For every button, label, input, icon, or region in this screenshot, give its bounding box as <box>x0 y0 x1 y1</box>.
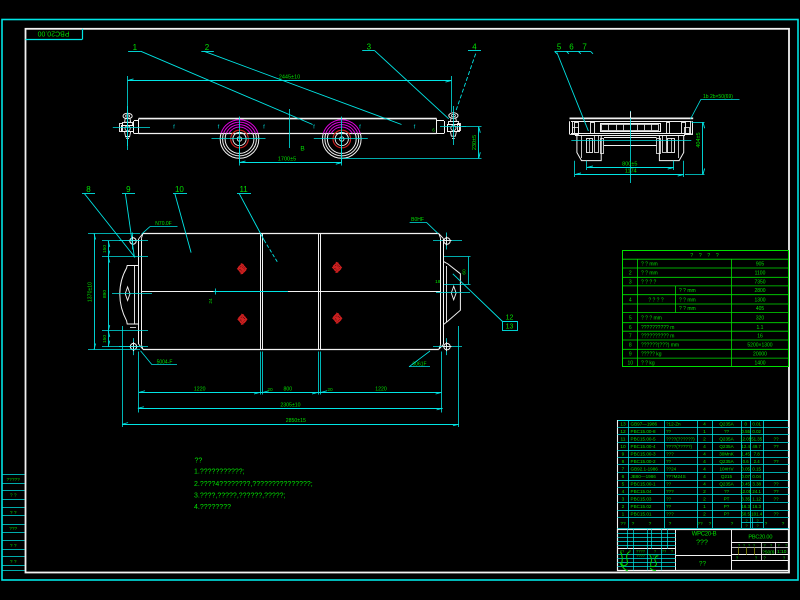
svg-text:Q235A: Q235A <box>719 422 734 427</box>
svg-text:1400: 1400 <box>754 360 765 366</box>
svg-text:11: 11 <box>239 185 248 194</box>
svg-text:??: ?? <box>773 459 779 464</box>
svg-text:10: 10 <box>620 444 626 450</box>
svg-text:9: 9 <box>126 185 131 194</box>
svg-text:5200×1300: 5200×1300 <box>747 343 772 349</box>
svg-text:6: 6 <box>622 474 625 480</box>
svg-text:? ? mm: ? ? mm <box>679 306 696 312</box>
svg-text:? ? mm: ? ? mm <box>641 262 658 268</box>
svg-text:??: ?? <box>666 429 672 434</box>
svg-text:??: ?? <box>724 429 730 434</box>
svg-text:??: ?? <box>773 437 779 442</box>
svg-text:GB97—1986: GB97—1986 <box>631 422 658 427</box>
svg-text:??: ?? <box>773 489 779 494</box>
svg-text:4.????????: 4.???????? <box>194 504 231 511</box>
svg-text:? ?: ? ? <box>10 559 17 565</box>
svg-text:24: 24 <box>208 298 214 304</box>
svg-text:???: ??? <box>666 489 674 494</box>
svg-text:?: ? <box>632 521 635 527</box>
svg-text:150: 150 <box>102 335 108 343</box>
svg-text:1370±10: 1370±10 <box>87 282 93 302</box>
svg-text:0.55: 0.55 <box>741 429 750 434</box>
svg-text:?: ? <box>748 544 750 548</box>
svg-text:PBC15.04: PBC15.04 <box>631 489 652 494</box>
svg-text:???: ??? <box>652 554 658 558</box>
svg-text:150: 150 <box>102 245 108 253</box>
svg-text:PBC20.00: PBC20.00 <box>748 534 772 540</box>
svg-text:PBC15.00-4: PBC15.00-4 <box>631 444 656 449</box>
svg-text:404±5: 404±5 <box>696 132 702 147</box>
svg-text:0.05: 0.05 <box>741 467 750 472</box>
svg-text:??: ?? <box>666 497 672 502</box>
svg-text:24.1: 24.1 <box>752 489 761 494</box>
svg-text:2: 2 <box>703 437 706 443</box>
svg-text:5: 5 <box>629 316 632 322</box>
svg-text:?????: ????? <box>7 477 21 483</box>
svg-text:4: 4 <box>622 489 625 495</box>
svg-text:20000: 20000 <box>753 352 767 358</box>
svg-text:4: 4 <box>703 474 706 480</box>
svg-text:1.???????????;: 1.???????????; <box>194 469 245 476</box>
svg-text:890: 890 <box>102 290 108 298</box>
svg-text:??????(???) mm: ??????(???) mm <box>641 343 679 349</box>
svg-text:7: 7 <box>622 467 625 473</box>
svg-text:7.8: 7.8 <box>754 452 761 457</box>
svg-text:3.????,?????,??????,?????;: 3.????,?????,??????,?????; <box>194 493 286 500</box>
svg-text:12: 12 <box>620 429 626 435</box>
svg-text:??: ?? <box>699 561 707 568</box>
svg-text:1220: 1220 <box>375 386 387 392</box>
svg-text:??: ?? <box>773 482 779 487</box>
svg-text:50.5: 50.5 <box>741 512 750 517</box>
svg-text:4: 4 <box>629 297 632 303</box>
svg-text:8: 8 <box>622 459 625 465</box>
svg-text:PBC15.00-3: PBC15.00-3 <box>631 452 656 457</box>
svg-text:B: B <box>300 146 304 153</box>
svg-text:0.15: 0.15 <box>752 467 761 472</box>
svg-text:5: 5 <box>557 43 562 52</box>
svg-text:12.05: 12.05 <box>740 489 752 494</box>
svg-text:10#HV: 10#HV <box>719 467 734 472</box>
svg-text:51.35: 51.35 <box>751 437 763 442</box>
svg-text:? ? mm: ? ? mm <box>641 271 658 277</box>
svg-text:7: 7 <box>629 334 632 340</box>
svg-text:2: 2 <box>703 489 706 495</box>
svg-text:4: 4 <box>703 422 706 428</box>
svg-text:13: 13 <box>620 422 626 428</box>
svg-text:?????????? m: ?????????? m <box>641 325 674 331</box>
svg-text:PBC15.00-2: PBC15.00-2 <box>631 459 656 464</box>
svg-text:? ?: ? ? <box>10 493 17 499</box>
svg-text:? ? mm: ? ? mm <box>679 288 696 294</box>
svg-text:Q235A: Q235A <box>719 482 734 487</box>
svg-text:9: 9 <box>622 452 625 458</box>
svg-text:2.????4????????,??????????????: 2.????4????????,???????????????; <box>194 481 313 488</box>
svg-text:12.05: 12.05 <box>740 437 752 442</box>
svg-text:1174: 1174 <box>625 169 637 175</box>
svg-text:1220: 1220 <box>194 386 206 392</box>
svg-text:20: 20 <box>267 387 273 393</box>
svg-text:2800: 2800 <box>754 288 765 294</box>
svg-text:905: 905 <box>756 262 765 268</box>
svg-text:0.07: 0.07 <box>741 474 750 479</box>
svg-text:16.3: 16.3 <box>741 504 750 509</box>
svg-text:1: 1 <box>622 512 625 518</box>
svg-text:405: 405 <box>756 306 765 312</box>
svg-text:60: 60 <box>462 269 468 275</box>
svg-text:10: 10 <box>175 185 184 194</box>
svg-text:?: ? <box>785 544 787 548</box>
svg-text:2305±10: 2305±10 <box>280 402 300 408</box>
svg-text:? ?: ? ? <box>10 510 17 516</box>
svg-text:WPC20-B: WPC20-B <box>692 532 717 538</box>
svg-text:2: 2 <box>205 43 210 52</box>
svg-text:? ? ? ?: ? ? ? ? <box>641 280 657 286</box>
svg-text:P?: P? <box>724 504 730 509</box>
svg-text:1: 1 <box>133 43 138 52</box>
svg-text:????? kg: ????? kg <box>641 352 662 358</box>
svg-text:16: 16 <box>757 334 763 340</box>
svg-text:????: ???? <box>636 554 644 558</box>
svg-text:230±5: 230±5 <box>472 135 478 150</box>
svg-text:9: 9 <box>629 352 632 358</box>
svg-text:7350: 7350 <box>754 280 765 286</box>
svg-text:20: 20 <box>327 387 333 393</box>
svg-text:? ?: ? ? <box>10 543 17 549</box>
svg-text:????(??????): ????(??????) <box>666 437 695 442</box>
svg-text:PBC15.00-8: PBC15.00-8 <box>631 429 656 434</box>
svg-text:? ? ? mm: ? ? ? mm <box>641 316 662 322</box>
svg-text:16.3: 16.3 <box>752 504 761 509</box>
svg-text:49.7: 49.7 <box>752 444 761 449</box>
svg-text:30MnK: 30MnK <box>719 452 734 457</box>
svg-text:3: 3 <box>622 497 625 503</box>
svg-text:??24: ??24 <box>666 467 677 472</box>
svg-text:800±5: 800±5 <box>622 162 637 168</box>
svg-text:4: 4 <box>703 444 706 450</box>
svg-text:7: 7 <box>582 43 587 52</box>
svg-text:???M24S: ???M24S <box>666 474 686 479</box>
svg-text:??: ?? <box>773 444 779 449</box>
svg-text:PBC15.03: PBC15.03 <box>631 497 652 502</box>
svg-text:3.35: 3.35 <box>741 497 750 502</box>
svg-text:JB80—1986: JB80—1986 <box>631 474 657 479</box>
svg-text:??: ?? <box>666 482 672 487</box>
svg-text:???: ??? <box>666 452 674 457</box>
svg-text:?12-Zn: ?12-Zn <box>666 422 681 427</box>
svg-text:2: 2 <box>629 271 632 277</box>
svg-text:0.6: 0.6 <box>743 459 750 464</box>
svg-text:?: ? <box>765 521 768 527</box>
svg-text:?: ? <box>731 521 734 527</box>
svg-text:????(?????): ????(?????) <box>666 444 693 449</box>
svg-text:?: ? <box>669 521 672 527</box>
svg-text:?: ? <box>709 521 712 527</box>
svg-text:12.4: 12.4 <box>741 444 750 449</box>
svg-text:1300: 1300 <box>754 297 765 303</box>
svg-text:?: ? <box>782 521 785 527</box>
svg-text:??: ?? <box>666 459 672 464</box>
svg-text:1:10: 1:10 <box>777 549 787 555</box>
svg-text:? ? mm: ? ? mm <box>679 297 696 303</box>
svg-text:??: ?? <box>195 458 203 465</box>
svg-text:12: 12 <box>506 315 514 322</box>
svg-text:?: ? <box>777 544 779 548</box>
svg-text:1.12: 1.12 <box>752 497 761 502</box>
svg-text:PBC15.01: PBC15.01 <box>631 512 652 517</box>
svg-text:800: 800 <box>283 386 292 392</box>
svg-text:13: 13 <box>506 324 514 331</box>
svg-text:?????????? m: ?????????? m <box>641 334 674 340</box>
svg-text:1700±5: 1700±5 <box>278 157 296 163</box>
svg-text:0.01: 0.01 <box>752 422 761 427</box>
svg-text:6: 6 <box>569 43 574 52</box>
svg-text:0.45: 0.45 <box>741 482 750 487</box>
svg-text:???: ??? <box>696 540 708 547</box>
svg-text:2.4: 2.4 <box>754 459 761 464</box>
svg-text:Q235A: Q235A <box>719 459 734 464</box>
svg-text:1.1: 1.1 <box>757 325 764 331</box>
svg-text:?: ? <box>649 521 652 527</box>
svg-text:8: 8 <box>86 185 91 194</box>
svg-text:2850±15: 2850±15 <box>286 418 306 424</box>
svg-text:GB92.1-1986: GB92.1-1986 <box>631 467 659 472</box>
svg-text:???: ??? <box>666 512 674 517</box>
svg-text:2: 2 <box>622 504 625 510</box>
svg-text:?: ? <box>738 544 740 548</box>
svg-text:8: 8 <box>629 343 632 349</box>
svg-text:Q235A: Q235A <box>719 444 734 449</box>
svg-text:PT: PT <box>724 497 730 502</box>
svg-text:????: ???? <box>636 548 646 553</box>
svg-text:Q215: Q215 <box>721 474 733 479</box>
svg-text:??: ?? <box>773 512 779 517</box>
svg-text:1: 1 <box>703 504 706 510</box>
svg-text:4: 4 <box>703 482 706 488</box>
svg-text:?: ? <box>753 544 755 548</box>
svg-text:1: 1 <box>703 429 706 435</box>
svg-text:? ? ? ?: ? ? ? ? <box>690 253 721 259</box>
svg-text:PBC20.00: PBC20.00 <box>37 30 69 37</box>
svg-text:P?: P? <box>724 512 730 517</box>
svg-text:101.4: 101.4 <box>751 512 763 517</box>
svg-text:320: 320 <box>756 316 765 322</box>
svg-text:PBC15.00-5: PBC15.00-5 <box>631 437 656 442</box>
svg-text:PBC15.02: PBC15.02 <box>631 504 652 509</box>
svg-text:10: 10 <box>628 360 634 366</box>
svg-text:?: ? <box>763 544 765 548</box>
svg-text:4: 4 <box>703 459 706 465</box>
svg-text:11: 11 <box>621 437 626 443</box>
svg-text:??: ?? <box>697 521 703 527</box>
svg-text:??: ?? <box>724 489 730 494</box>
svg-text:Q235A: Q235A <box>719 437 734 442</box>
svg-text:0.02: 0.02 <box>752 429 761 434</box>
svg-text:0.04: 0.04 <box>752 474 761 479</box>
svg-text:?: ? <box>770 544 772 548</box>
svg-text:1.45: 1.45 <box>741 452 750 457</box>
svg-text:??: ?? <box>620 521 626 527</box>
svg-text:5: 5 <box>622 482 625 488</box>
svg-text:4: 4 <box>703 452 706 458</box>
svg-text:3: 3 <box>629 280 632 286</box>
svg-text:2: 2 <box>703 512 706 518</box>
svg-text:???: ??? <box>9 526 17 532</box>
svg-text:2: 2 <box>703 497 706 503</box>
svg-text:? ? ? ?: ? ? ? ? <box>648 297 664 303</box>
svg-text:??: ?? <box>662 548 667 553</box>
svg-text:PBC15.00-1: PBC15.00-1 <box>631 482 656 487</box>
svg-text:6: 6 <box>629 325 632 331</box>
svg-text:2445±10: 2445±10 <box>279 75 300 81</box>
svg-text:18: 18 <box>435 279 441 285</box>
svg-text:3.38: 3.38 <box>752 482 761 487</box>
svg-text:? ? kg: ? ? kg <box>641 360 655 366</box>
svg-text:?: ? <box>743 544 745 548</box>
svg-text:1100: 1100 <box>755 271 766 277</box>
svg-text:4: 4 <box>703 467 706 473</box>
svg-text:??: ?? <box>773 497 779 502</box>
svg-text:??: ?? <box>666 504 672 509</box>
